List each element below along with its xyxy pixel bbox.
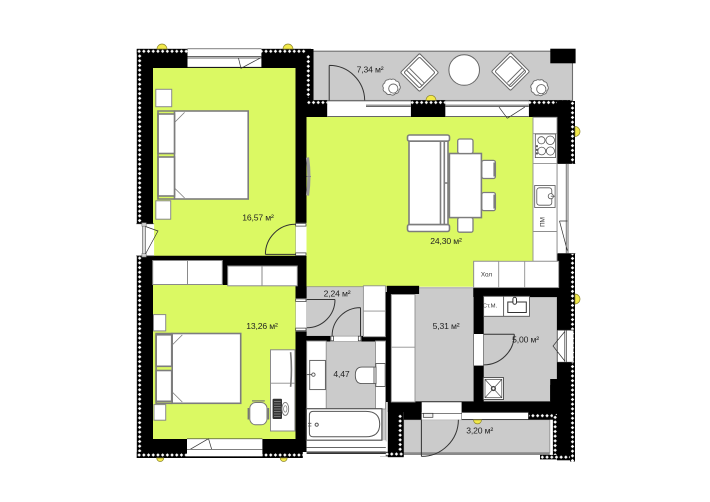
svg-text:4,47: 4,47 [333,369,349,379]
svg-text:ПМ: ПМ [540,217,547,227]
svg-text:Ст.М.: Ст.М. [483,304,498,310]
svg-text:13,26 м²: 13,26 м² [246,321,278,331]
svg-text:3,20 м²: 3,20 м² [466,426,493,436]
svg-text:24,30 м²: 24,30 м² [430,236,462,246]
svg-text:16,57 м²: 16,57 м² [242,213,274,223]
svg-text:Хол: Хол [481,272,492,279]
svg-text:7,34 м²: 7,34 м² [357,65,384,75]
svg-text:5,31 м²: 5,31 м² [433,321,460,331]
svg-text:2,24 м²: 2,24 м² [324,289,351,299]
svg-text:5,00 м²: 5,00 м² [512,335,539,345]
